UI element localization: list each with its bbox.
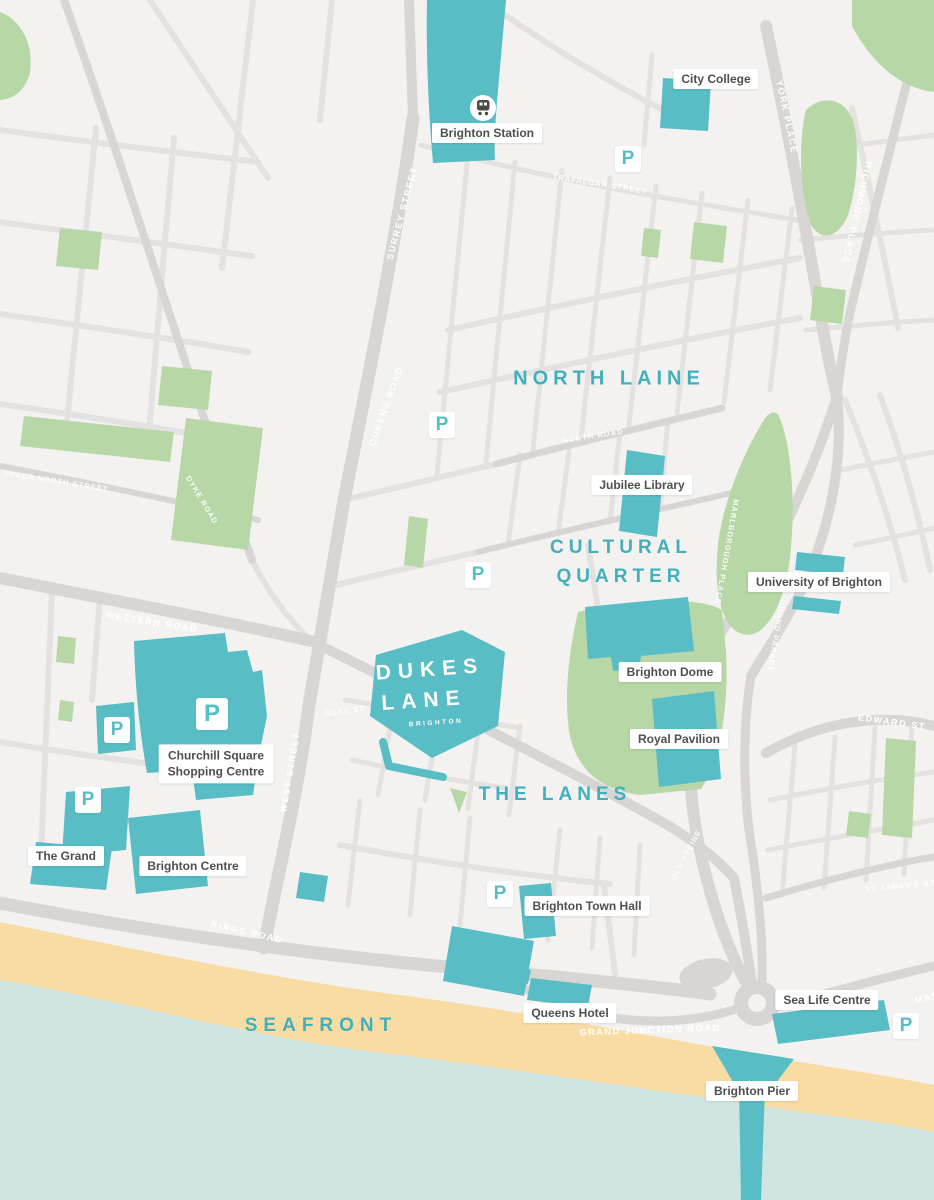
parking-icon-queens-road: P	[429, 412, 455, 438]
building-university-2	[792, 596, 841, 614]
train-icon	[470, 95, 496, 121]
label-city-college: City College	[673, 69, 758, 89]
area-label-north-laine: NORTH LAINE	[513, 368, 705, 391]
label-jubilee-library: Jubilee Library	[591, 475, 692, 495]
parking-icon-churchill: P	[196, 698, 228, 730]
map-canvas	[0, 0, 934, 1200]
area-label-the-lanes: THE LANES	[479, 784, 632, 806]
label-sea-life-centre: Sea Life Centre	[775, 990, 878, 1010]
area-label-seafront: SEAFRONT	[245, 1015, 398, 1037]
parking-icon-sea-life: P	[893, 1013, 919, 1039]
building-lanes-block	[443, 926, 534, 996]
label-line: Churchill Square	[168, 748, 264, 762]
parking-icon-town-hall: P	[487, 881, 513, 907]
label-line: Shopping Centre	[168, 764, 265, 778]
label-churchill-square: Churchill Square Shopping Centre	[159, 744, 274, 783]
label-brighton-town-hall: Brighton Town Hall	[524, 896, 649, 916]
parking-icon-russell-road: P	[75, 787, 101, 813]
parking-icon-churchill-west: P	[104, 717, 130, 743]
label-queens-hotel: Queens Hotel	[523, 1003, 616, 1023]
building-small-west	[296, 872, 328, 902]
label-royal-pavilion: Royal Pavilion	[630, 729, 728, 749]
area-label-cultural-line1: CULTURAL	[550, 537, 692, 559]
label-university-of-brighton: University of Brighton	[748, 572, 890, 592]
building-brighton-centre	[128, 810, 208, 894]
parking-icon-church-street: P	[465, 562, 491, 588]
area-label-cultural-line2: QUARTER	[557, 566, 686, 588]
label-brighton-pier: Brighton Pier	[706, 1081, 798, 1101]
brighton-map: SURREY STREET QUEENS ROAD WEST STREET YO…	[0, 0, 934, 1200]
label-brighton-dome: Brighton Dome	[619, 662, 722, 682]
label-brighton-centre: Brighton Centre	[139, 856, 246, 876]
label-the-grand: The Grand	[28, 846, 104, 866]
parking-icon-city-college: P	[615, 146, 641, 172]
label-brighton-station: Brighton Station	[432, 123, 542, 143]
